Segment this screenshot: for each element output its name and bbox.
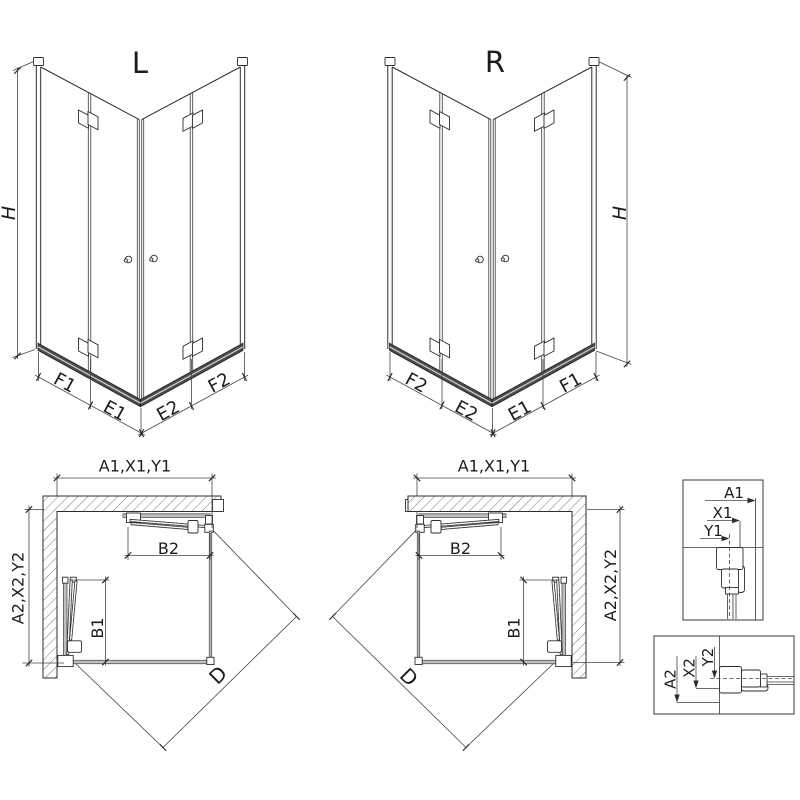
detail-box-top: A1 X1 Y1 bbox=[683, 480, 763, 620]
detail-bottom-label-x2: X2 bbox=[681, 658, 699, 678]
detail-top-label-a1: A1 bbox=[724, 484, 744, 502]
iso-left-dim-h: H bbox=[0, 206, 20, 220]
drawing-canvas: L H F1 E1 E2 F2 R H F2 E2 E1 F1 bbox=[0, 0, 800, 800]
plan-right-dim-b2: B2 bbox=[450, 539, 471, 558]
plan-left-dim-b2: B2 bbox=[158, 539, 179, 558]
plan-left-dim-top: A1,X1,Y1 bbox=[99, 457, 171, 476]
plan-right-dim-b1: B1 bbox=[505, 617, 524, 638]
plan-right-dim-side: A2,X2,Y2 bbox=[601, 549, 620, 621]
detail-top-label-y1: Y1 bbox=[703, 522, 723, 540]
plan-left-dim-b1: B1 bbox=[88, 617, 107, 638]
iso-right-dim-h: H bbox=[609, 206, 631, 220]
detail-bottom-label-a2: A2 bbox=[662, 669, 680, 689]
detail-box-bottom: A2 X2 Y2 bbox=[654, 636, 794, 714]
plan-left-dim-side: A2,X2,Y2 bbox=[9, 552, 28, 624]
detail-top-label-x1: X1 bbox=[713, 504, 733, 522]
detail-bottom-label-y2: Y2 bbox=[699, 648, 717, 668]
shower-enclosure-technical-drawing: L H F1 E1 E2 F2 R H F2 E2 E1 F1 bbox=[0, 0, 800, 800]
plan-right-dim-top: A1,X1,Y1 bbox=[458, 457, 530, 476]
iso-right-variant-label: R bbox=[485, 45, 505, 79]
iso-left-variant-label: L bbox=[132, 46, 148, 80]
